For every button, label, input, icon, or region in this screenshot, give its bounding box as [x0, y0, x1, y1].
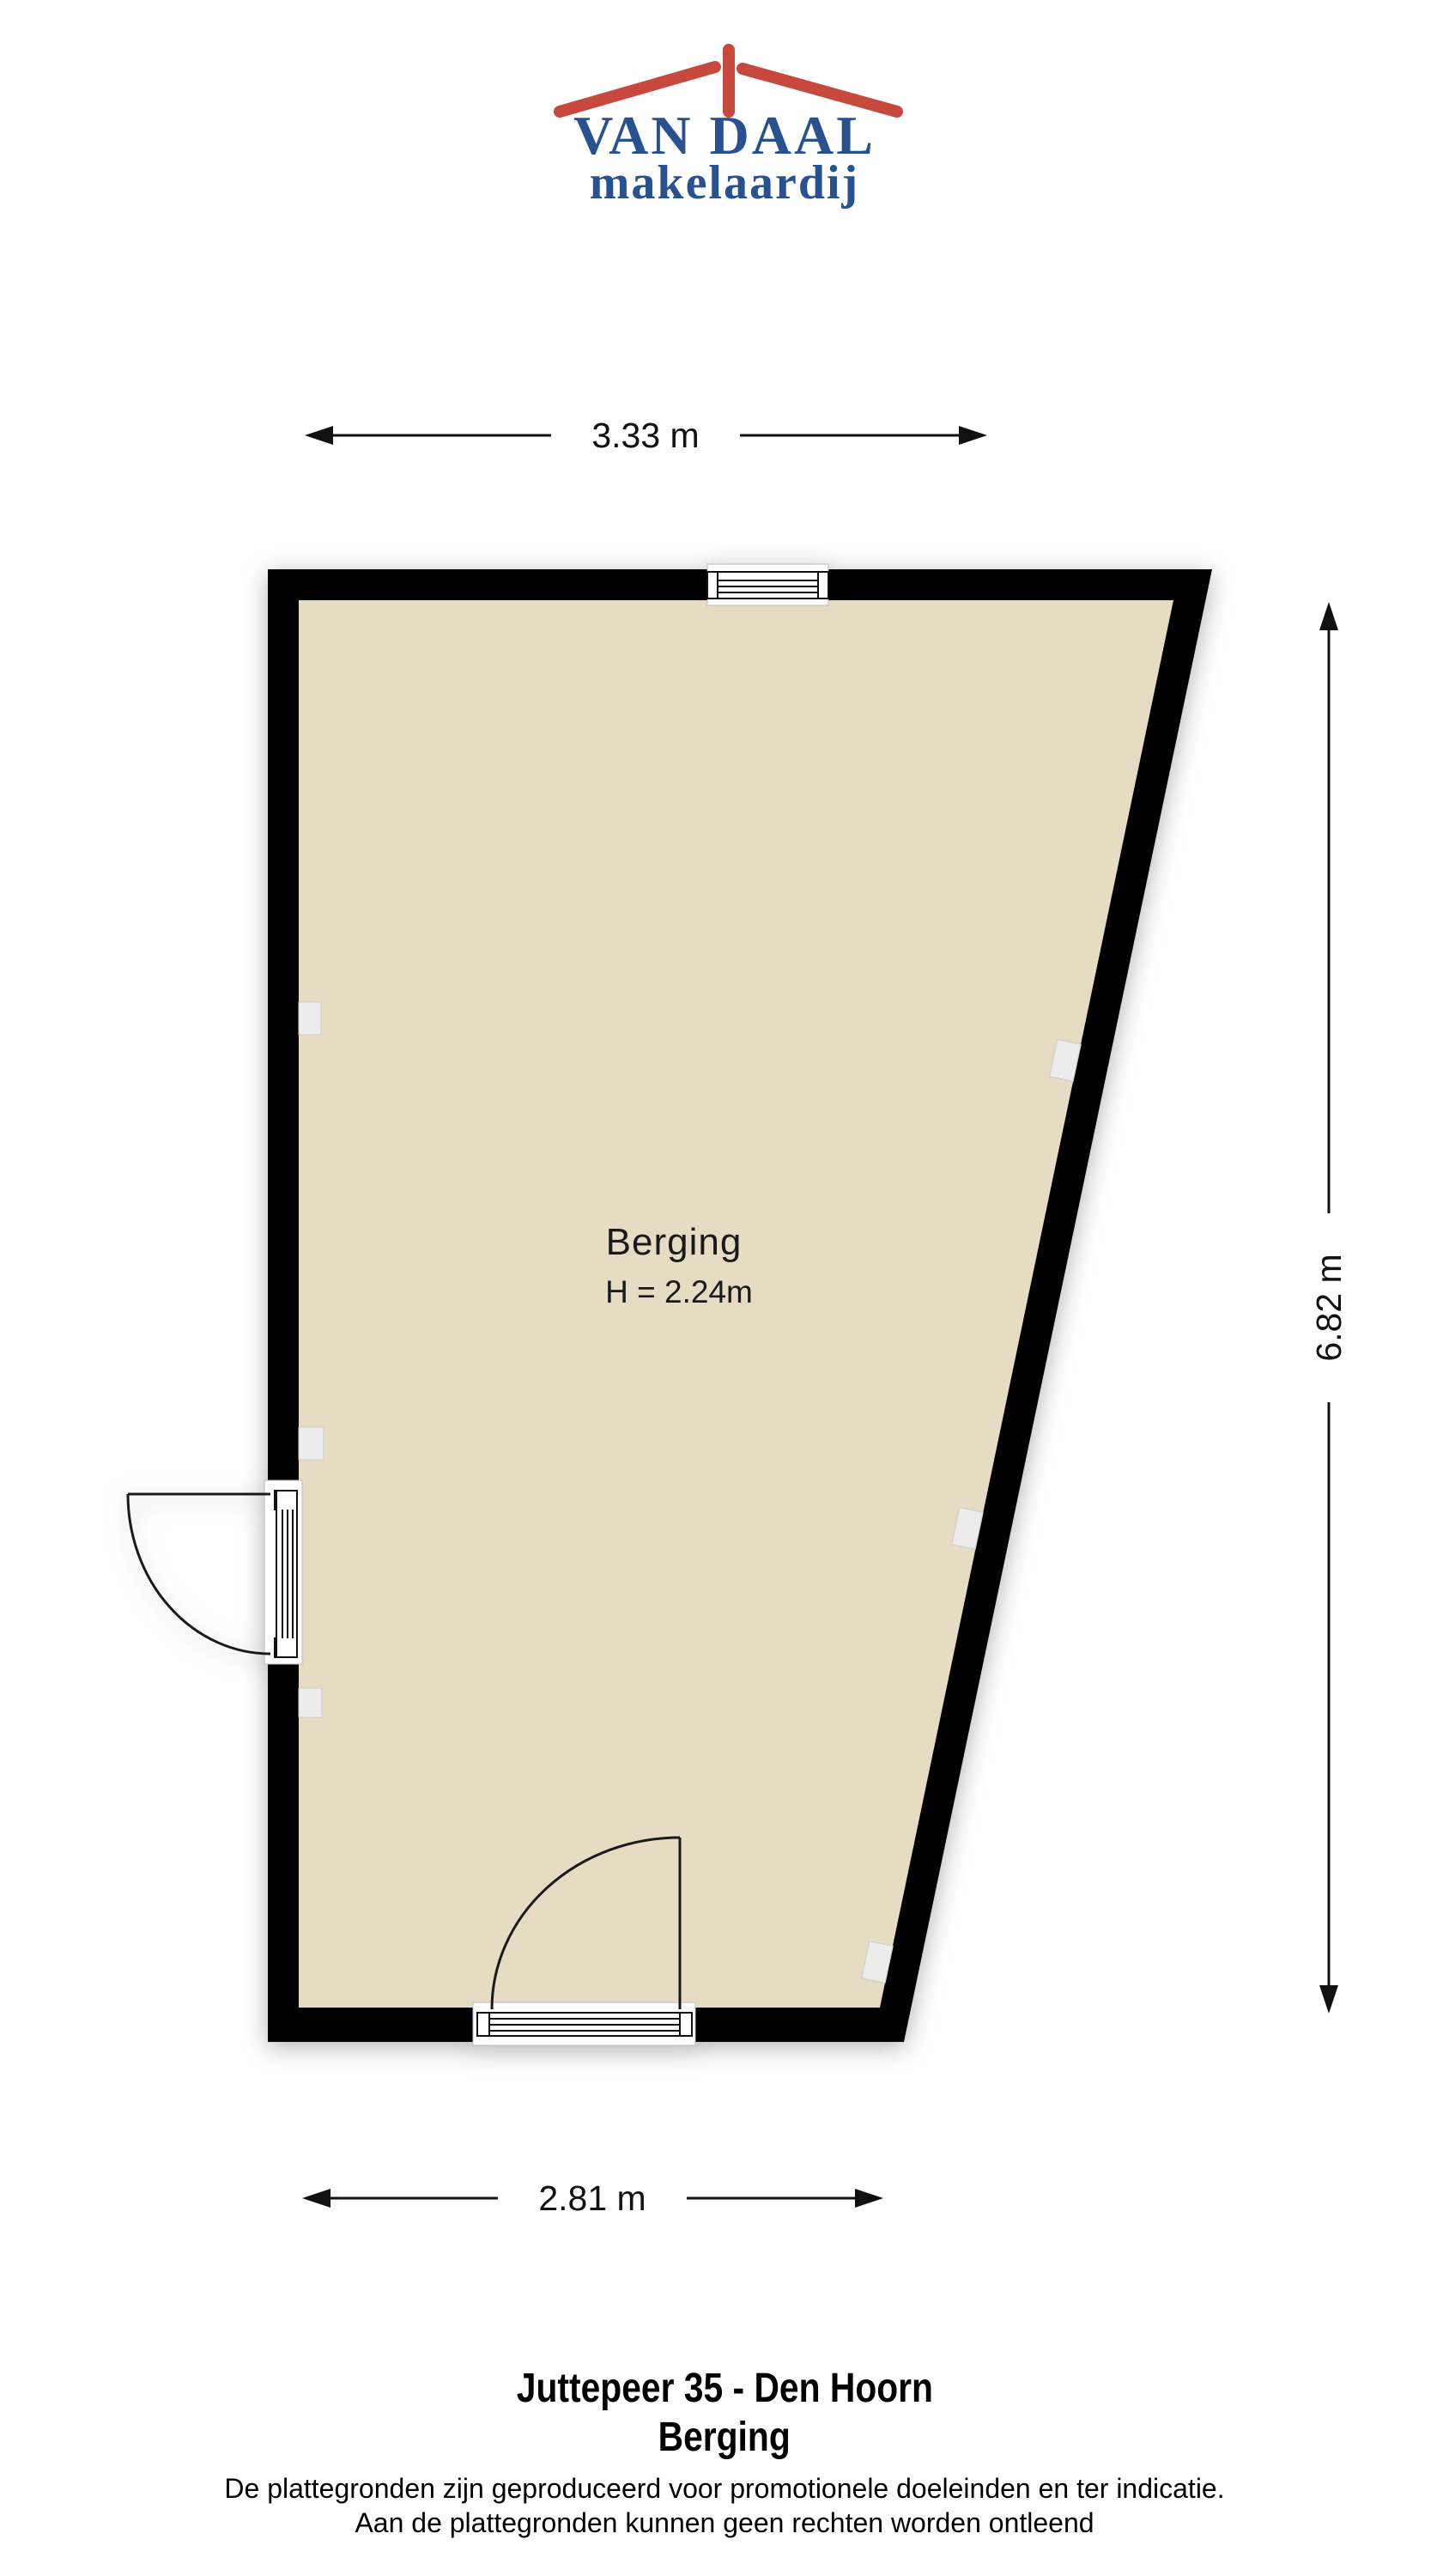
door-bottom-jamb-left: [477, 2013, 489, 2036]
room-height-label: H = 2.24m: [550, 1272, 808, 1313]
room-name-label: Berging: [545, 1220, 803, 1265]
door-bottom-jamb-right: [680, 2013, 692, 2036]
window-jamb-right: [818, 572, 828, 598]
footer-disclaimer-line2: Aan de plattegronden kunnen geen rechten…: [0, 2506, 1449, 2540]
footer-disclaimer-line1: De plattegronden zijn geproduceerd voor …: [0, 2471, 1449, 2506]
window-jamb-left: [707, 572, 718, 598]
window-frame: [718, 572, 818, 598]
wall-fixture: [299, 1002, 321, 1035]
door-left-swing-arc: [128, 1494, 270, 1654]
dimension-label-top: 3.33 m: [551, 413, 740, 458]
footer-room-text: Berging: [658, 2414, 791, 2462]
footer-room: Berging: [0, 2414, 1449, 2462]
wall-fixture: [299, 1688, 322, 1717]
wall-fixture: [299, 1427, 324, 1460]
door-left: [264, 1480, 302, 1664]
door-bottom: [473, 2002, 695, 2045]
footer-address: Juttepeer 35 - Den Hoorn: [0, 2365, 1449, 2413]
dimension-label-bottom: 2.81 m: [498, 2176, 687, 2221]
footer-address-text: Juttepeer 35 - Den Hoorn: [516, 2365, 932, 2413]
dimension-label-right: 6.82 m: [1307, 1213, 1351, 1402]
window-top: [707, 564, 828, 605]
